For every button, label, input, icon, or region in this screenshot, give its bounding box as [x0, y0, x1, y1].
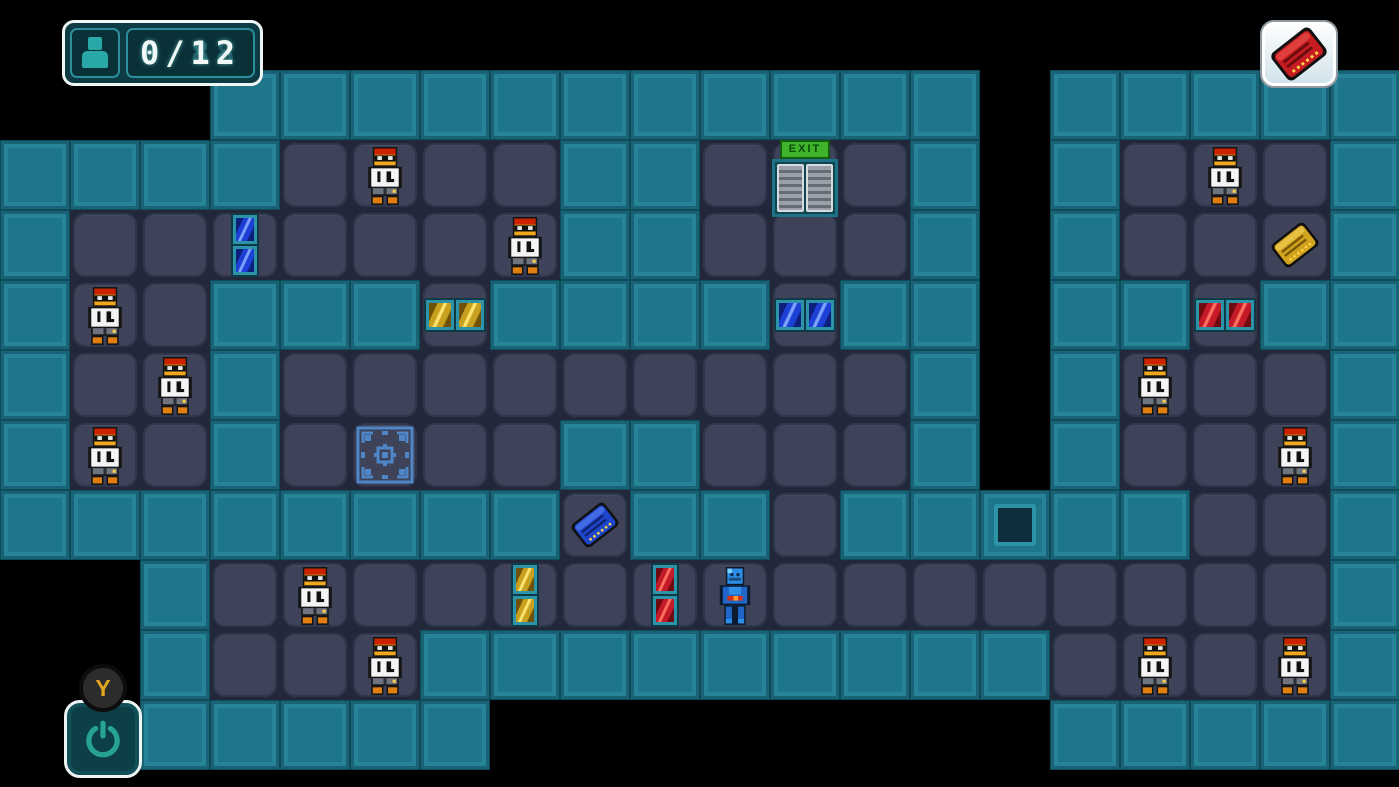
scientist-npc: [1275, 427, 1315, 488]
wall-block: [840, 280, 910, 350]
floor-tile: [420, 210, 490, 280]
wall-block: [70, 140, 140, 210]
wall-block: [910, 140, 980, 210]
wall-block: [140, 490, 210, 560]
red-door-horizontal: [1194, 298, 1256, 332]
wall-block: [210, 700, 280, 770]
floor-tile: [420, 560, 490, 630]
floor-tile: [840, 350, 910, 420]
wall-block: [1260, 280, 1330, 350]
wall-block: [140, 560, 210, 630]
wall-block: [420, 490, 490, 560]
wall-block: [1050, 70, 1120, 140]
floor-tile: [840, 420, 910, 490]
wall-block: [1190, 70, 1260, 140]
floor-tile: [280, 630, 350, 700]
person-icon: [80, 34, 110, 72]
floor-tile: [210, 560, 280, 630]
floor-tile: [350, 210, 420, 280]
floor-tile: [910, 560, 980, 630]
wall-block: [1050, 350, 1120, 420]
rescue-counter: 8/88 0/12: [62, 20, 263, 86]
floor-tile: [1120, 560, 1190, 630]
floor-tile: [350, 560, 420, 630]
floor-tile: [70, 210, 140, 280]
wall-block: [630, 280, 700, 350]
wall-block: [420, 630, 490, 700]
floor-tile: [770, 560, 840, 630]
wall-block: [210, 280, 280, 350]
wall-block: [910, 70, 980, 140]
floor-tile: [1190, 350, 1260, 420]
wall-block: [560, 210, 630, 280]
wall-block: [700, 70, 770, 140]
wall-block: [0, 350, 70, 420]
floor-tile: [280, 350, 350, 420]
wall-block: [1260, 700, 1330, 770]
wall-block: [630, 70, 700, 140]
wall-block: [1050, 280, 1120, 350]
floor-tile: [490, 350, 560, 420]
floor-tile: [700, 350, 770, 420]
scientist-npc: [85, 287, 125, 348]
floor-tile: [1190, 630, 1260, 700]
wall-block: [1330, 560, 1399, 630]
circuit-pad-icon: [353, 423, 417, 487]
floor-tile: [1190, 210, 1260, 280]
floor-tile: [1260, 490, 1330, 560]
scientist-npc: [1135, 357, 1175, 418]
wall-block: [1330, 700, 1399, 770]
scientist-npc: [365, 637, 405, 698]
floor-tile: [420, 350, 490, 420]
wall-block: [1050, 700, 1120, 770]
floor-tile: [560, 350, 630, 420]
wall-block: [840, 630, 910, 700]
floor-tile: [280, 420, 350, 490]
player-robot: [715, 567, 755, 628]
floor-tile: [980, 560, 1050, 630]
scientist-npc: [155, 357, 195, 418]
wall-block: [1120, 700, 1190, 770]
wall-block: [630, 490, 700, 560]
scientist-npc: [85, 427, 125, 488]
level-map: EXIT: [0, 0, 1399, 770]
wall-block: [350, 70, 420, 140]
wall-block: [490, 280, 560, 350]
wall-block: [70, 490, 140, 560]
wall-block: [910, 280, 980, 350]
wall-block: [0, 210, 70, 280]
wall-block: [630, 630, 700, 700]
wall-block: [140, 140, 210, 210]
floor-tile: [700, 210, 770, 280]
wall-block: [210, 140, 280, 210]
floor-tile: [560, 560, 630, 630]
wall-block: [1330, 280, 1399, 350]
wall-block: [350, 490, 420, 560]
wall-block: [280, 280, 350, 350]
floor-tile: [140, 210, 210, 280]
wall-block: [1330, 210, 1399, 280]
wall-block: [840, 490, 910, 560]
wall-block: [1330, 350, 1399, 420]
floor-tile: [1120, 210, 1190, 280]
floor-tile: [840, 210, 910, 280]
wall-block: [700, 490, 770, 560]
scientist-npc: [365, 147, 405, 208]
floor-tile: [280, 210, 350, 280]
wall-block: [1120, 280, 1190, 350]
floor-tile: [770, 420, 840, 490]
floor-tile: [700, 140, 770, 210]
wall-block: [0, 140, 70, 210]
floor-tile: [840, 560, 910, 630]
gold-door-horizontal: [424, 298, 486, 332]
wall-block: [910, 630, 980, 700]
wall-block: [420, 70, 490, 140]
restart-icon: [82, 718, 124, 760]
floor-tile: [350, 350, 420, 420]
wall-block: [1330, 630, 1399, 700]
wall-block: [1330, 140, 1399, 210]
floor-tile: [1260, 140, 1330, 210]
wall-block: [1330, 490, 1399, 560]
wall-block: [560, 630, 630, 700]
floor-tile: [280, 140, 350, 210]
rescue-counter-display: 8/88 0/12: [126, 28, 255, 78]
exit-door: EXIT: [772, 140, 838, 217]
wall-block: [350, 280, 420, 350]
wall-block: [840, 70, 910, 140]
scientist-npc: [295, 567, 335, 628]
wall-block: [0, 420, 70, 490]
blue-door-horizontal: [774, 298, 836, 332]
wall-block: [140, 630, 210, 700]
floor-tile: [1120, 420, 1190, 490]
wall-block: [630, 420, 700, 490]
wall-block: [420, 700, 490, 770]
wall-block: [560, 280, 630, 350]
floor-tile: [1120, 140, 1190, 210]
wall-block: [1120, 70, 1190, 140]
wall-block: [210, 490, 280, 560]
wall-block: [1050, 140, 1120, 210]
wall-block: [490, 70, 560, 140]
wall-block: [980, 630, 1050, 700]
blue-keycard: [569, 499, 621, 551]
wall-block: [1050, 210, 1120, 280]
floor-tile: [1050, 560, 1120, 630]
red-keycard-icon: [1267, 23, 1331, 85]
floor-tile: [1260, 350, 1330, 420]
floor-tile: [490, 420, 560, 490]
wall-block: [700, 280, 770, 350]
wall-block: [0, 280, 70, 350]
floor-tile: [490, 140, 560, 210]
wall-block: [0, 490, 70, 560]
wall-block: [770, 70, 840, 140]
wall-block: [910, 420, 980, 490]
exit-door-leaves: [772, 159, 838, 217]
wall-block: [910, 350, 980, 420]
wall-block: [280, 490, 350, 560]
floor-tile: [1260, 560, 1330, 630]
gold-keycard: [1269, 219, 1321, 271]
floor-tile: [770, 490, 840, 560]
wall-block: [910, 490, 980, 560]
wall-block: [1050, 420, 1120, 490]
wall-block: [280, 700, 350, 770]
floor-tile: [770, 350, 840, 420]
counter-value: 0/12: [140, 34, 241, 72]
floor-tile: [140, 420, 210, 490]
wall-block: [770, 630, 840, 700]
scientist-npc: [1275, 637, 1315, 698]
floor-tile: [1190, 560, 1260, 630]
floor-tile: [770, 210, 840, 280]
floor-tile: [420, 140, 490, 210]
rescue-counter-icon-box: [70, 28, 120, 78]
wall-block: [910, 210, 980, 280]
wall-block: [140, 700, 210, 770]
wall-block: [1190, 700, 1260, 770]
floor-tile: [1190, 490, 1260, 560]
wall-block: [700, 630, 770, 700]
wall-block: [490, 630, 560, 700]
scientist-npc: [1135, 637, 1175, 698]
wall-block: [630, 140, 700, 210]
wall-block: [210, 420, 280, 490]
wall-block: [280, 70, 350, 140]
floor-tile: [630, 350, 700, 420]
blue-door-vertical: [231, 213, 259, 277]
wall-block: [210, 350, 280, 420]
scientist-npc: [505, 217, 545, 278]
restart-button[interactable]: Y: [64, 664, 142, 778]
wall-block: [630, 210, 700, 280]
wall-block: [1330, 70, 1399, 140]
wall-pillar: [980, 490, 1050, 560]
wall-block: [560, 420, 630, 490]
exit-sign: EXIT: [780, 140, 830, 159]
floor-tile: [420, 420, 490, 490]
wall-block: [1120, 490, 1190, 560]
floor-tile: [840, 140, 910, 210]
wall-block: [1050, 490, 1120, 560]
floor-tile: [1190, 420, 1260, 490]
floor-tile: [70, 350, 140, 420]
wall-block: [1330, 420, 1399, 490]
floor-tile: [140, 280, 210, 350]
scientist-npc: [1205, 147, 1245, 208]
wall-block: [490, 490, 560, 560]
floor-tile: [1050, 630, 1120, 700]
gamepad-y-badge: Y: [79, 664, 127, 712]
floor-tile: [210, 630, 280, 700]
keycard-indicator: [1260, 20, 1338, 88]
floor-tile: [700, 420, 770, 490]
game-viewport: EXIT 8/88 0/12 Y: [0, 0, 1399, 787]
wall-block: [560, 140, 630, 210]
wall-block: [350, 700, 420, 770]
red-door-vertical: [651, 563, 679, 627]
wall-block: [560, 70, 630, 140]
gold-door-vertical: [511, 563, 539, 627]
